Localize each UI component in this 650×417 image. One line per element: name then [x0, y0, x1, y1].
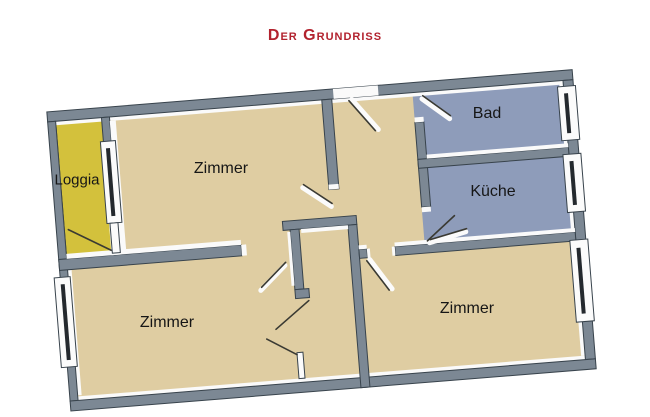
room-label-zimmer-bottom-right: Zimmer: [440, 300, 494, 318]
room-label-zimmer-top: Zimmer: [194, 160, 248, 178]
room-label-loggia: Loggia: [54, 172, 99, 189]
window-bad: [557, 85, 579, 140]
wall-zimmerbr-top-a: [359, 249, 368, 259]
floorplan-page: Der Grundriss Loggia Zimmer Bad Küche Zi…: [0, 0, 650, 417]
cap-kueche-wall-bottom: [422, 206, 431, 212]
room-label-zimmer-bottom-left: Zimmer: [140, 314, 194, 332]
cap-corridor-wall: [329, 184, 339, 190]
wall-hall-arm-foot: [295, 289, 310, 299]
cap-kueche-wall-top: [414, 117, 423, 123]
page-title: Der Grundriss: [0, 27, 650, 45]
floorplan-drawing: [0, 0, 650, 417]
floorplan-rotated-group: [41, 70, 598, 412]
cap-zimmerbl-door: [241, 244, 247, 255]
band-zimmerbr-top-a: [359, 245, 367, 250]
room-label-kueche: Küche: [470, 183, 515, 201]
door-leaf: [110, 223, 120, 254]
room-label-bad: Bad: [473, 105, 501, 123]
